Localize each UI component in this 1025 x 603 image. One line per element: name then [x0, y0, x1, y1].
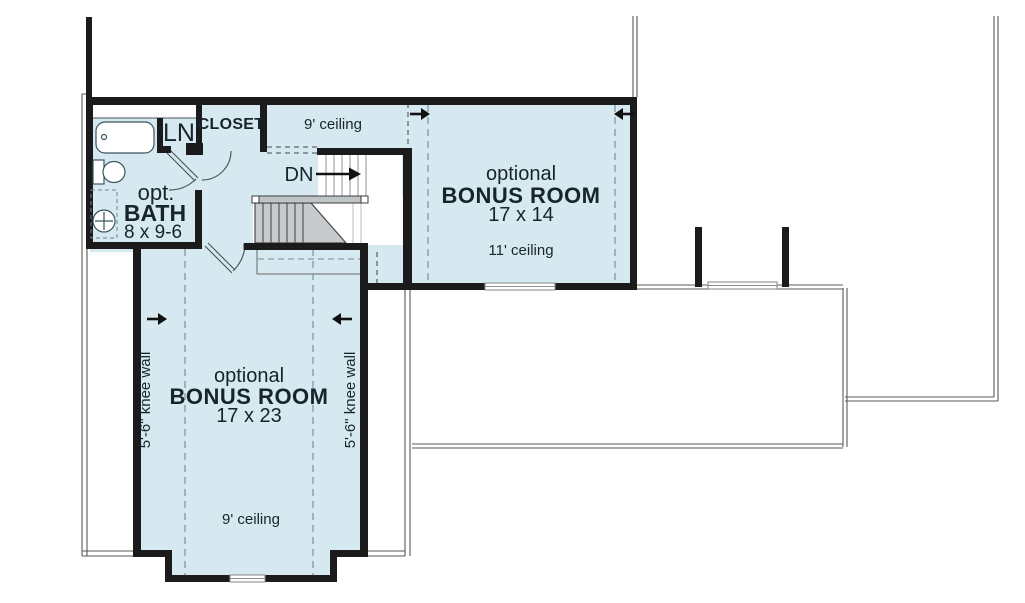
hall-ceiling-label: 9' ceiling — [304, 116, 362, 133]
bonus-upper-prefix-label: optional — [486, 163, 556, 185]
toilet-bowl-icon — [103, 162, 125, 183]
bonus-upper-size-label: 17 x 14 — [488, 204, 554, 226]
bonus-lower-size-label: 17 x 23 — [216, 405, 282, 427]
stairwell-upper-white — [318, 155, 402, 197]
bonus-lower-ceiling-label: 9' ceiling — [222, 511, 280, 528]
bonus-upper-ceiling-label: 11' ceiling — [488, 242, 553, 259]
porch-post — [695, 227, 702, 287]
newel-post — [361, 196, 368, 203]
hall-pocket-fill — [363, 248, 408, 288]
stairs-down-label: DN — [285, 164, 314, 186]
floor-plan-drawing: CLOSET LN 9' ceiling DN opt. BATH 8 x 9-… — [0, 0, 1025, 603]
wall-chase-strip — [93, 105, 196, 118]
stair-handrail — [252, 196, 368, 203]
knee-wall-left-label: 5'-6" knee wall — [137, 352, 154, 449]
bath-size-label: 8 x 9-6 — [124, 222, 182, 243]
linen-closet-label: LN — [163, 119, 195, 147]
floor-plan-page: CLOSET LN 9' ceiling DN opt. BATH 8 x 9-… — [0, 0, 1025, 603]
porch-post — [782, 227, 789, 287]
toilet-tank-icon — [93, 160, 104, 184]
knee-wall-right-label: 5'-6" knee wall — [342, 352, 359, 449]
newel-post — [252, 196, 259, 203]
bathtub-icon — [96, 122, 154, 153]
closet-label: CLOSET — [198, 116, 265, 133]
